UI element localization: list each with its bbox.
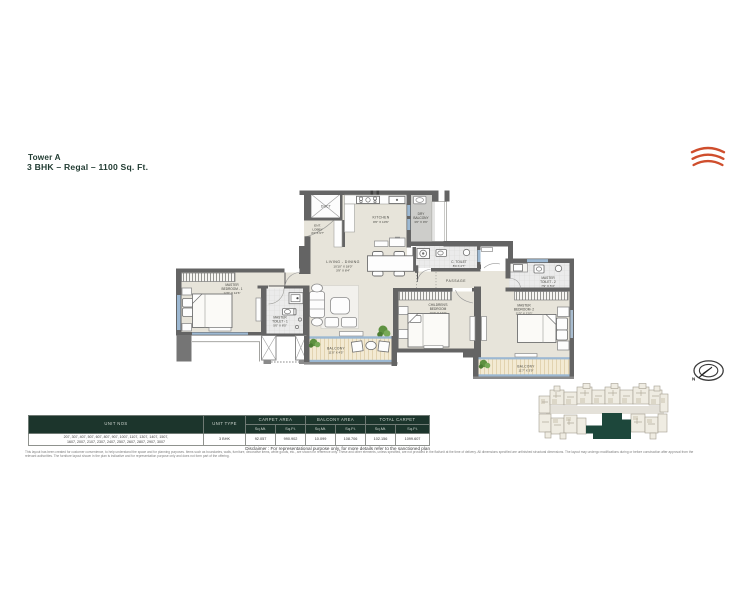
svg-text:5'0" X 8'5": 5'0" X 8'5" [273,324,287,328]
svg-text:PASSAGE: PASSAGE [446,279,466,283]
svg-text:3'0" X 9'6": 3'0" X 9'6" [414,220,428,224]
svg-text:8'0 X 4'7": 8'0 X 4'7" [453,264,466,268]
svg-text:4'3" X 9'7": 4'3" X 9'7" [311,231,324,235]
svg-text:7'9" X 5'3": 7'9" X 5'3" [541,284,555,288]
svg-text:N: N [692,377,695,382]
svg-text:3'9" X 8'4": 3'9" X 8'4" [336,268,350,272]
svg-text:8'0" X 10'6": 8'0" X 10'6" [373,220,389,224]
svg-text:DUCT: DUCT [321,205,331,209]
svg-text:11'7" X 3'9": 11'7" X 3'9" [518,369,533,373]
svg-text:11'0" X 4'5": 11'0" X 4'5" [328,351,343,355]
